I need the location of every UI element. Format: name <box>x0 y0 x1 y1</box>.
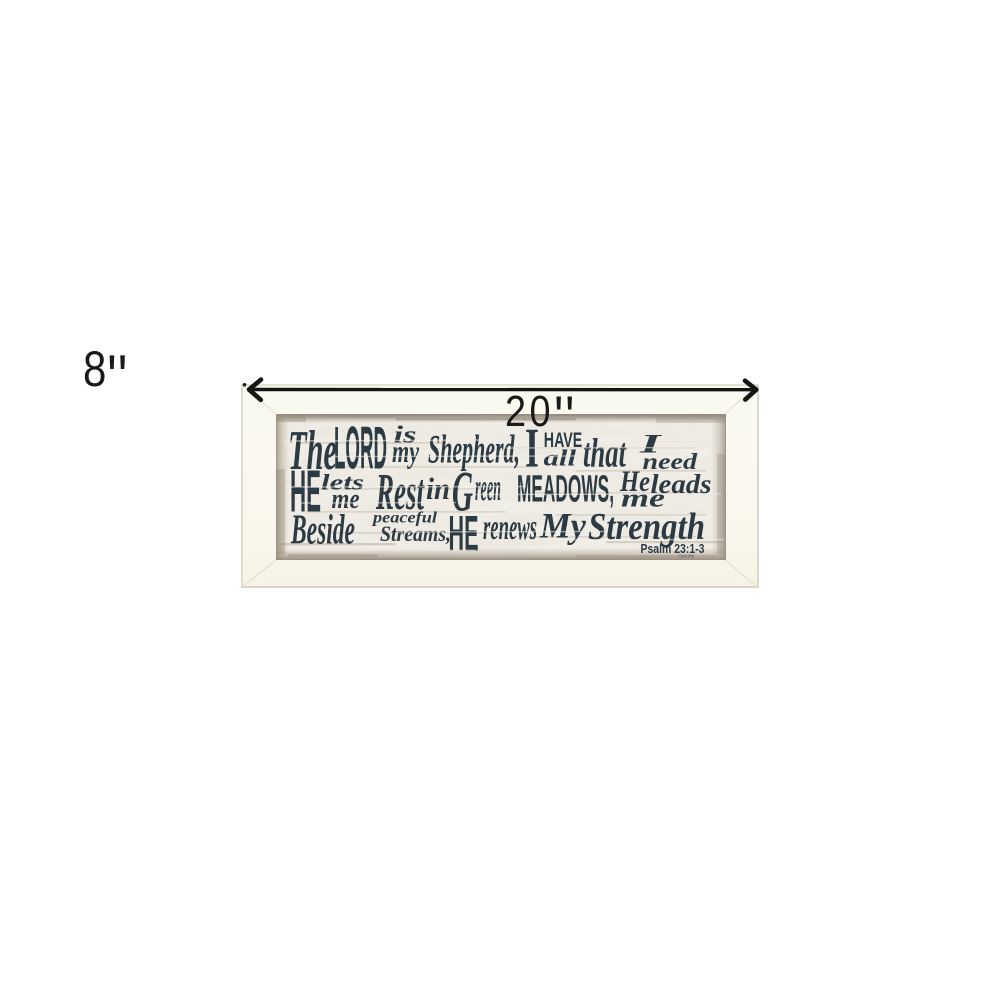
svg-text:Beside: Beside <box>290 508 355 554</box>
svg-text:Streams,: Streams, <box>380 521 451 546</box>
svg-text:reen: reen <box>475 467 501 509</box>
svg-text:renews: renews <box>483 507 537 547</box>
svg-text:in: in <box>426 471 450 506</box>
svg-text:MEADOWS,: MEADOWS, <box>517 469 614 511</box>
svg-text:Psalm 23:1-3: Psalm 23:1-3 <box>641 541 705 556</box>
svg-text:HE: HE <box>449 506 479 561</box>
svg-text:© Annie LaPoint: © Annie LaPoint <box>678 553 694 560</box>
